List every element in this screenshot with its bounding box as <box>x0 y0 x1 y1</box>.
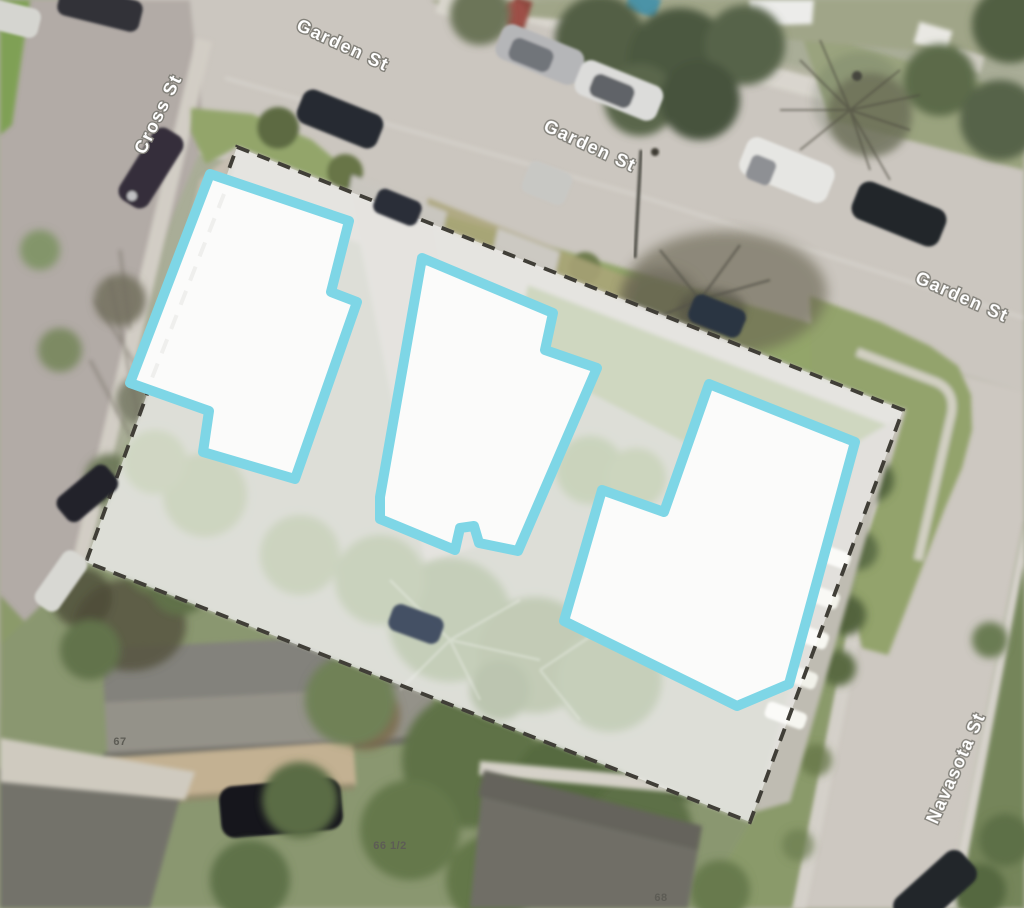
svg-text:68: 68 <box>654 892 667 904</box>
svg-text:66 1/2: 66 1/2 <box>373 840 407 852</box>
svg-text:67: 67 <box>113 736 126 748</box>
